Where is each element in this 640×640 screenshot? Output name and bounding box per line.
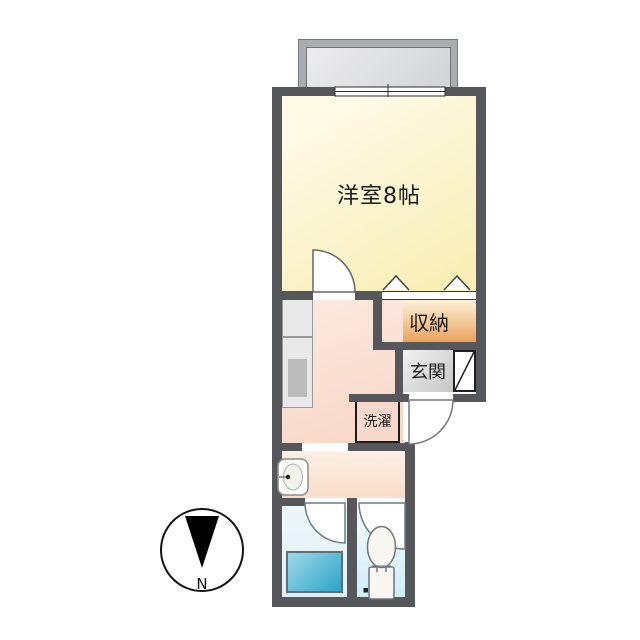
washroom-doorway (302, 443, 348, 451)
wall-washroom-right (405, 442, 415, 607)
room-washroom (282, 451, 405, 498)
wall-room-bottom-left (272, 291, 313, 300)
kitchen-sink (288, 359, 307, 397)
entrance-door-arc-icon (409, 394, 453, 444)
floor-plan-image: N 洋室8帖 収納 玄関 洗濯 (0, 0, 640, 640)
wall-hall-bottom-left (272, 443, 302, 451)
room-toilet (357, 506, 405, 597)
wall-under-entrance-right (453, 394, 486, 402)
north-arrow-icon (185, 516, 219, 568)
compass: N (161, 509, 243, 593)
room-western-room (282, 96, 476, 291)
wall-bath-toilet-divider (347, 498, 357, 607)
bathtub (286, 551, 343, 593)
wall-left (272, 87, 282, 607)
wall-washroom-bottom-left (272, 498, 305, 506)
wall-bottom (272, 597, 415, 607)
entrance-door-panel (453, 350, 476, 392)
north-label: N (196, 575, 207, 593)
wall-under-entrance-left (349, 394, 409, 402)
wall-below-closet (373, 342, 486, 350)
wall-right-upper (476, 87, 486, 402)
kitchen-counter-upper (282, 299, 313, 337)
entrance-door-diagonal (455, 352, 474, 390)
wall-top (272, 87, 486, 96)
closet-door-strip (382, 291, 476, 300)
laundry-space (355, 398, 400, 443)
room-entrance (403, 350, 453, 392)
balcony-floor (306, 47, 451, 88)
compass-circle (161, 509, 243, 591)
